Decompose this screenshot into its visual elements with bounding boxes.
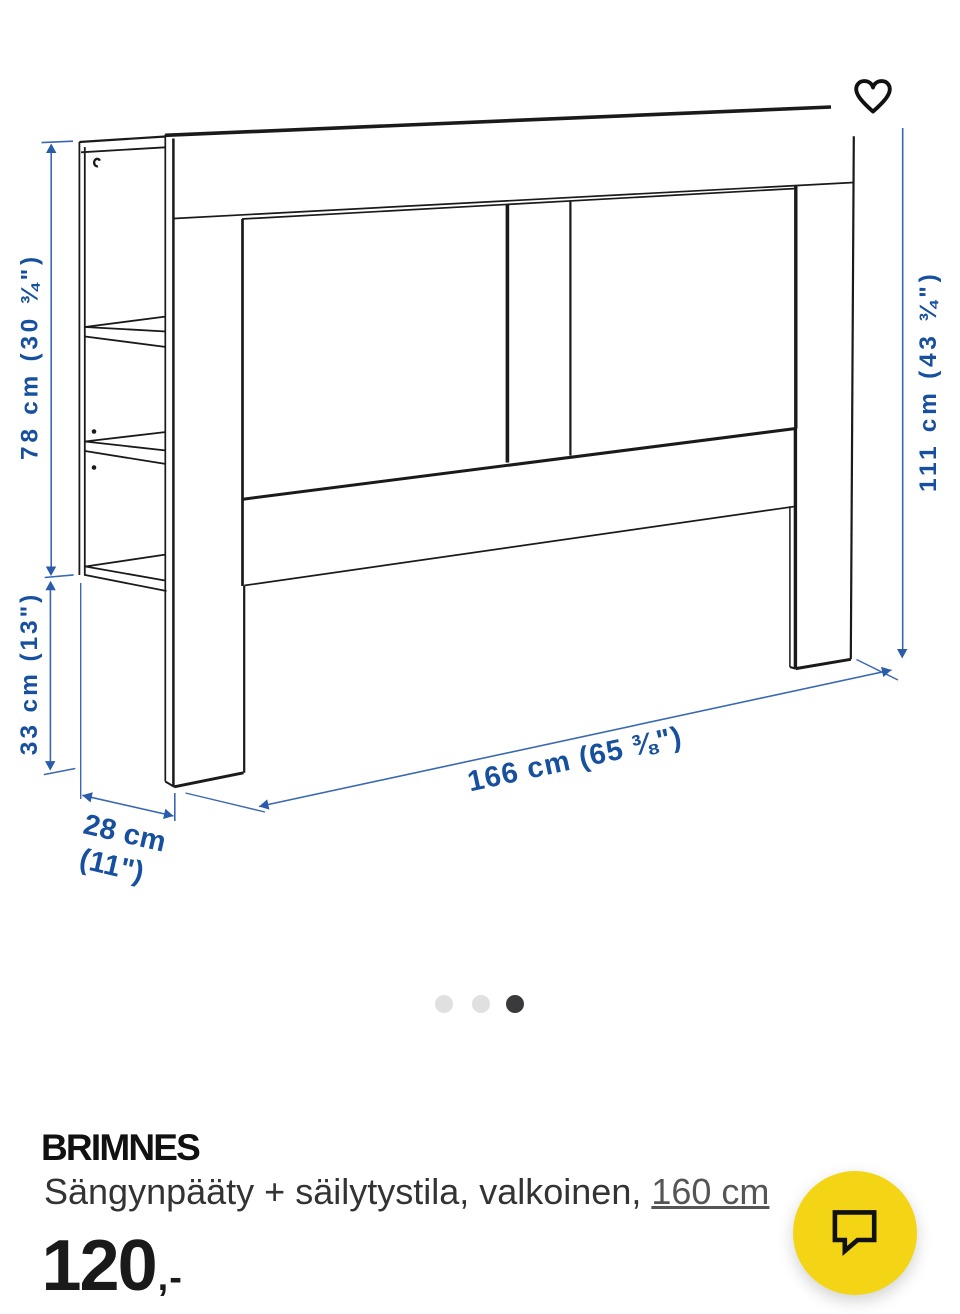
svg-text:78 cm (30 ¾"): 78 cm (30 ¾")	[17, 253, 44, 460]
svg-text:166 cm (65 ⅜"): 166 cm (65 ⅜")	[465, 721, 686, 798]
svg-text:111 cm (43 ¾"): 111 cm (43 ¾")	[915, 271, 942, 492]
svg-text:33 cm (13"): 33 cm (13")	[16, 592, 43, 755]
